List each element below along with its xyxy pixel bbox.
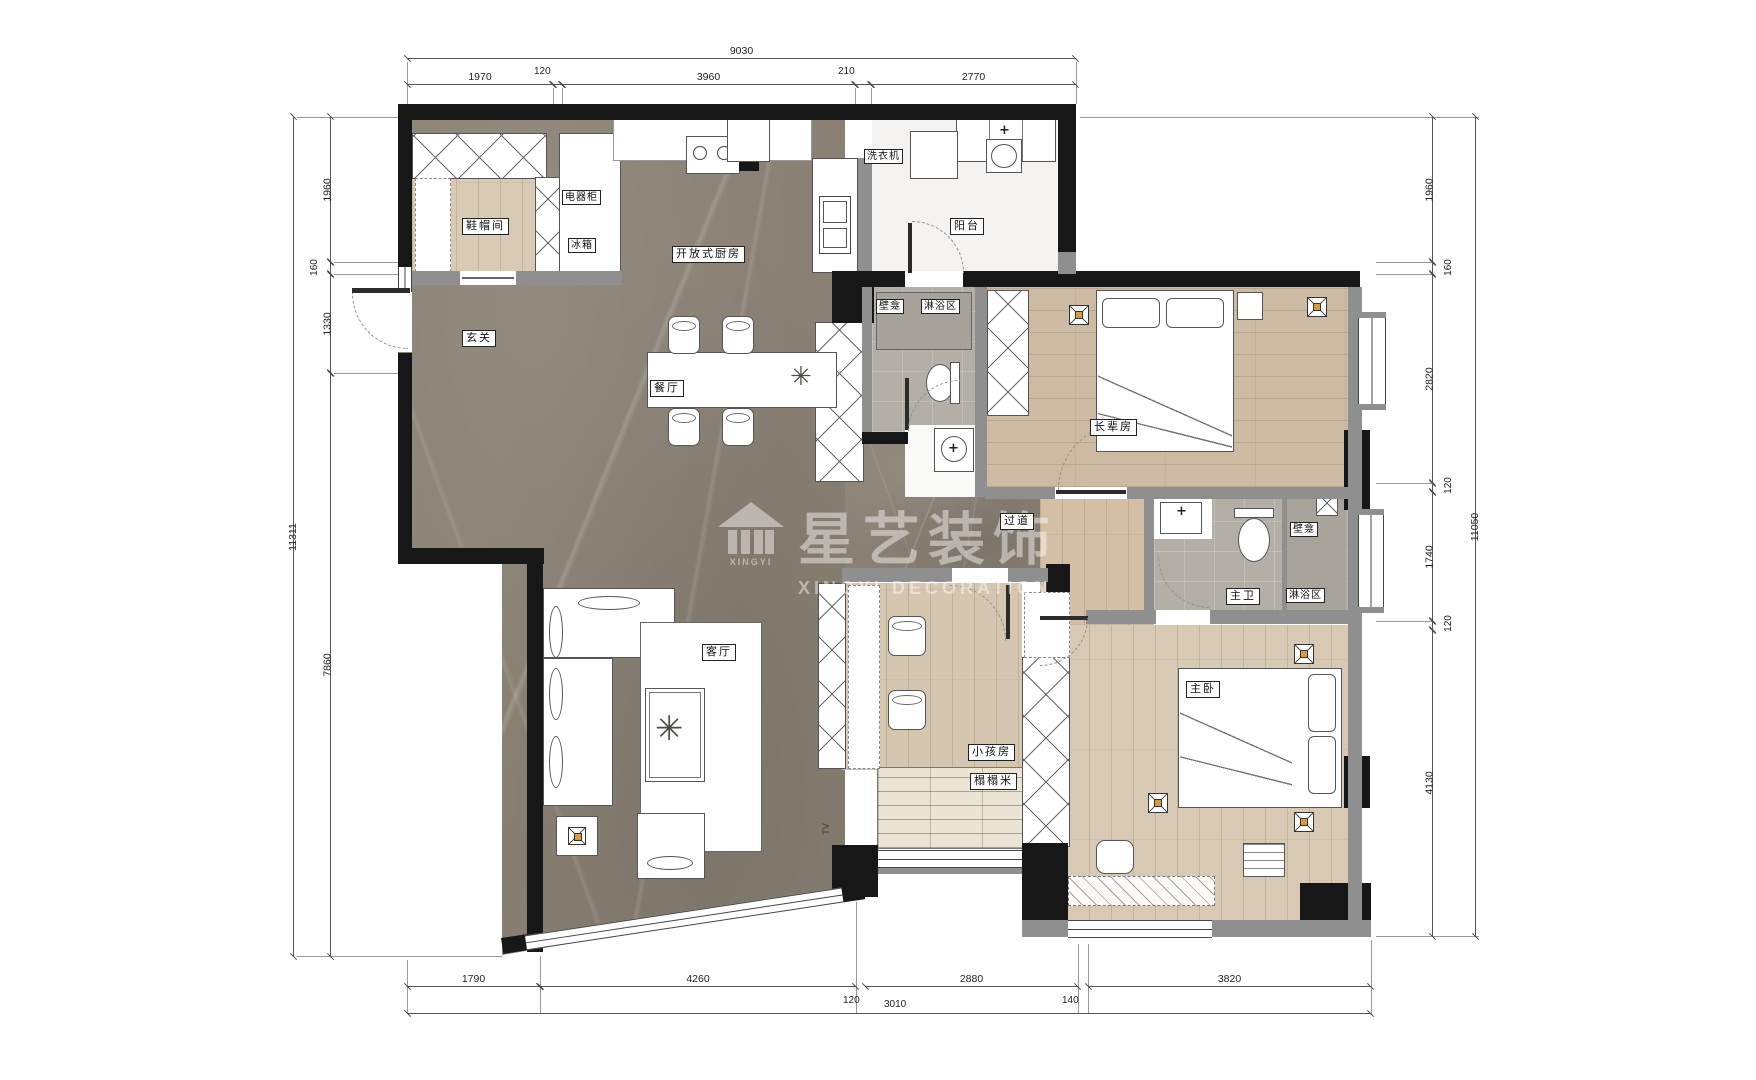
- dim-top-total: 9030: [407, 58, 1076, 59]
- wall-bath-right: [975, 287, 987, 497]
- label-niche-2: 壁龛: [1290, 522, 1318, 537]
- label-shoe-room: 鞋帽间: [462, 218, 509, 235]
- ext-line: [334, 262, 398, 263]
- master-pillow: [1308, 736, 1336, 794]
- label-shower-1: 淋浴区: [921, 299, 960, 314]
- ext-line: [855, 88, 856, 104]
- bedroom-rug: [1068, 876, 1215, 906]
- kitchen-sink-basin: [823, 201, 847, 223]
- mbath-door-gap: [1156, 610, 1210, 624]
- dining-chair: [668, 408, 700, 446]
- shoe-sliding-door: [462, 277, 514, 279]
- dim-bottom-sub-1: 120: [843, 995, 860, 1006]
- wall-left-step: [398, 548, 544, 564]
- dim-top-4: [855, 84, 871, 85]
- dim-top-1: 1970: [407, 84, 553, 85]
- brand-name: 星艺装饰: [798, 494, 1058, 576]
- master-toilet-bowl: [1238, 518, 1270, 562]
- master-vanity-faucet: +: [1176, 505, 1187, 518]
- wall-bath-bottom: [862, 432, 908, 444]
- ceiling-light: [1069, 305, 1089, 325]
- table-plant: ✳: [790, 364, 812, 390]
- stove-burner-left: [693, 146, 707, 160]
- bedroom-bench: [1243, 843, 1285, 877]
- wall-kitchen-balcony: [858, 158, 872, 271]
- ext-line: [1376, 621, 1432, 622]
- dim-bottom-sub-3: 140: [1062, 995, 1079, 1006]
- dim-right-1: 1960: [1432, 117, 1433, 262]
- ext-line: [1088, 944, 1089, 1014]
- flue-stub: [739, 162, 759, 171]
- rug-plant: ✳: [655, 712, 684, 746]
- ext-line: [1076, 62, 1077, 104]
- ceiling-light: [1294, 644, 1314, 664]
- elder-nightstand: [1237, 292, 1263, 320]
- dim-left-2-label: 160: [309, 259, 320, 276]
- dining-chair: [722, 408, 754, 446]
- logo-columns: [728, 530, 774, 554]
- dim-top-5: 2770: [871, 84, 1076, 85]
- dim-right-5: 1740: [1432, 492, 1433, 621]
- window-master-bottom: [1068, 920, 1212, 938]
- elder-pillow: [1102, 298, 1160, 328]
- label-fridge: 冰箱: [568, 238, 596, 253]
- ext-line: [334, 373, 398, 374]
- sofa-cushion: [549, 736, 563, 788]
- balcony-door-gap: [905, 271, 963, 287]
- label-master-bath: 主卫: [1226, 588, 1260, 605]
- label-balcony: 阳台: [950, 218, 984, 235]
- label-niche-1: 壁龛: [876, 299, 904, 314]
- wall-mbath-left: [1144, 497, 1154, 612]
- kids-chair: [888, 616, 926, 656]
- dim-right-2-label: 160: [1443, 259, 1454, 276]
- dim-bottom-2: 4260: [540, 986, 856, 987]
- elder-pillow: [1166, 298, 1224, 328]
- dim-right-total: 11050: [1475, 117, 1476, 936]
- label-washing-machine: 洗衣机: [864, 149, 903, 164]
- dim-left-4: 7860: [330, 373, 331, 956]
- flue-shaft: [727, 119, 770, 162]
- dim-top-4-label: 210: [838, 66, 855, 77]
- kids-chair: [888, 690, 926, 730]
- dim-right-6-label: 120: [1443, 615, 1454, 632]
- label-master-bedroom: 主卧: [1186, 681, 1220, 698]
- balcony-sink-basin: [991, 144, 1017, 168]
- brand-logo-icon: XINGYI: [718, 502, 784, 567]
- dim-bottom-1: 1790: [407, 986, 540, 987]
- armchair-cushion: [647, 856, 693, 870]
- ext-line: [1376, 936, 1479, 937]
- ext-line: [1371, 940, 1372, 1014]
- public-vanity-faucet: +: [948, 442, 959, 455]
- dim-left-total: 11311: [293, 117, 294, 956]
- watermark: XINGYI 星艺装饰 XINGYI DECORATION: [718, 494, 1138, 604]
- wall-mbath-bottom: [1086, 610, 1360, 624]
- ext-line: [297, 117, 398, 118]
- kids-desk: [848, 585, 880, 769]
- label-elder-room: 长辈房: [1090, 419, 1137, 436]
- ceiling-light: [1148, 793, 1168, 813]
- dim-left-1: 1960: [330, 117, 331, 262]
- logo-caption: XINGYI: [718, 557, 784, 567]
- label-kids-room: 小孩房: [968, 744, 1015, 761]
- ext-line: [1080, 117, 1479, 118]
- sofa-cushion: [578, 596, 640, 610]
- label-appliance-cabinet: 电器柜: [562, 190, 601, 205]
- window-tatami: [878, 850, 1022, 868]
- label-corridor: 过道: [1000, 513, 1034, 530]
- sofa-cushion: [549, 668, 563, 720]
- wall-left-lower: [527, 562, 543, 952]
- wall-left-upper: [398, 120, 412, 267]
- ext-line: [1376, 483, 1432, 484]
- ceiling-light: [1294, 812, 1314, 832]
- kids-wardrobe: [1022, 657, 1070, 847]
- dim-right-7: 4130: [1432, 630, 1433, 936]
- bay-window-elder: [1358, 318, 1386, 404]
- washing-machine: [910, 131, 958, 179]
- dim-bottom-3: 2880: [865, 986, 1078, 987]
- floorplan-canvas: 9030 1970 120 3960 210 2770 11311 1960 1…: [0, 0, 1756, 1080]
- dim-bottom-4: 3820: [1088, 986, 1371, 987]
- elder-wardrobe: [987, 290, 1029, 416]
- kitchen-sink-basin2: [823, 228, 847, 248]
- label-dining: 餐厅: [650, 380, 684, 397]
- entry-door-arc: [352, 293, 408, 349]
- dining-chair: [722, 316, 754, 354]
- ext-line: [1376, 274, 1432, 275]
- dim-bottom-subline: [407, 1013, 1371, 1014]
- dim-right-4-label: 120: [1443, 477, 1454, 494]
- wall-balcony-right-sill: [1058, 252, 1076, 274]
- dim-right-3: 2820: [1432, 274, 1433, 483]
- master-pillow: [1308, 674, 1336, 732]
- label-shower-2: 淋浴区: [1286, 588, 1325, 603]
- label-entry: 玄关: [462, 330, 496, 347]
- dim-bottom-sub-2: 3010: [884, 999, 906, 1010]
- dim-left-3: 1330: [330, 274, 331, 373]
- master-bath-cabinet: [1316, 498, 1338, 516]
- label-living: 客厅: [702, 644, 736, 661]
- ext-line: [297, 956, 502, 957]
- dressing-stool: [1096, 840, 1134, 874]
- wall-balcony-right: [1058, 104, 1076, 256]
- logo-roof: [718, 502, 784, 527]
- wall-top: [398, 104, 1076, 120]
- label-tatami: 榻榻米: [970, 773, 1017, 790]
- dim-top-3: 3960: [562, 84, 855, 85]
- label-open-kitchen: 开放式厨房: [672, 246, 745, 263]
- wall-left-mid: [398, 353, 412, 553]
- balcony-faucet: +: [999, 124, 1010, 137]
- sofa-cushion: [549, 606, 563, 658]
- ext-line: [1376, 262, 1432, 263]
- wall-bath-left: [862, 287, 872, 432]
- shoe-room-bench: [415, 178, 451, 272]
- dining-chair: [668, 316, 700, 354]
- ext-line: [334, 274, 398, 275]
- floor-lamp: [568, 827, 586, 845]
- ceiling-light: [1307, 297, 1327, 317]
- dim-top-2-label: 120: [534, 66, 551, 77]
- shoe-room-wardrobe: [412, 133, 547, 179]
- bay-window-shower: [1358, 515, 1384, 607]
- master-toilet-tank: [1234, 508, 1274, 518]
- ext-line: [871, 88, 872, 104]
- tv-label: TV: [821, 823, 831, 835]
- shoe-room-cabinet: [535, 177, 561, 275]
- tv-wall-cabinet: [818, 583, 846, 769]
- brand-name-en: XINGYI DECORATION: [798, 578, 1058, 599]
